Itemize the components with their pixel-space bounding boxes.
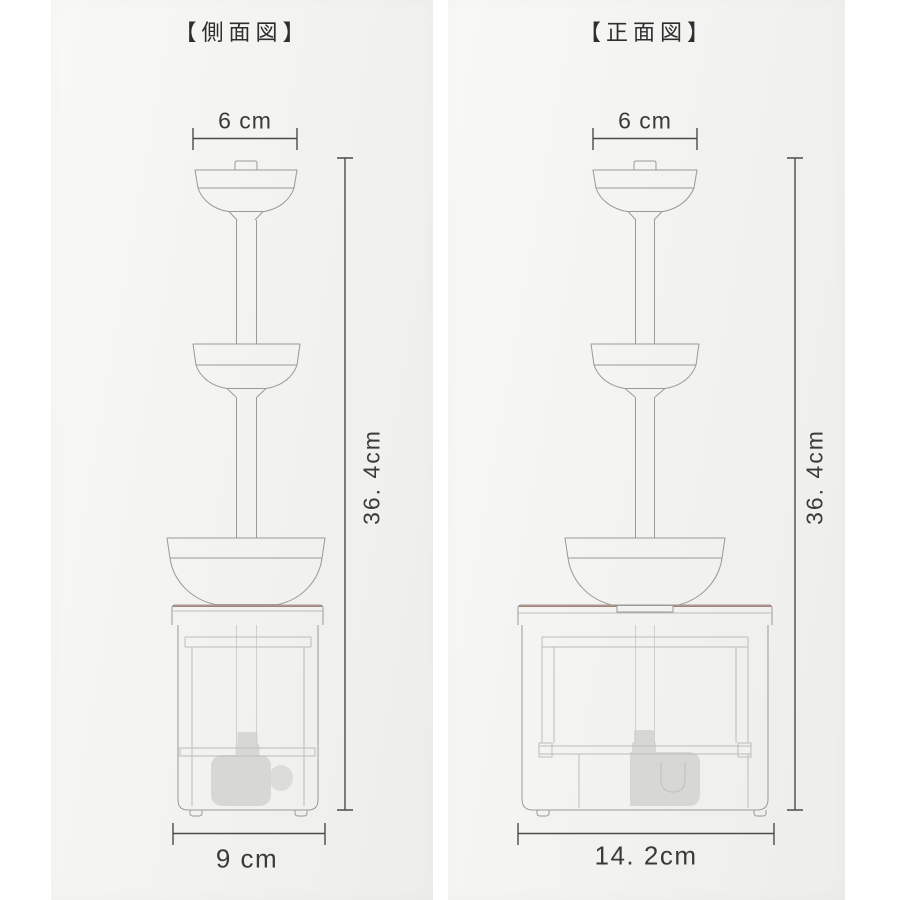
side-height-dimension-line — [337, 158, 353, 810]
dimension-diagram: 【側面図】 — [0, 0, 900, 900]
stem — [237, 220, 257, 538]
reservoir-lid — [518, 605, 772, 625]
stem-through-tank-lines — [237, 625, 257, 746]
side-view-panel: 【側面図】 — [51, 0, 433, 900]
reservoir-lid — [172, 605, 323, 625]
side-height-label: 36. 4cm — [359, 429, 386, 525]
main-bowl — [167, 538, 325, 605]
front-base-width-label: 14. 2cm — [595, 841, 698, 872]
side-top-width-label: 6 cm — [218, 108, 272, 135]
stem-through-tank-lines — [636, 625, 655, 744]
stem — [636, 220, 655, 538]
front-view-drawing — [448, 0, 845, 900]
pump — [630, 730, 700, 806]
top-bowl — [195, 161, 297, 220]
side-base-width-dimension-line — [173, 823, 325, 845]
main-bowl — [565, 538, 725, 606]
front-view-panel: 【正面図】 — [448, 0, 845, 900]
middle-bowl — [591, 344, 699, 397]
front-top-width-label: 6 cm — [618, 108, 672, 135]
pump — [211, 732, 293, 806]
middle-bowl — [193, 344, 300, 397]
top-bowl — [593, 161, 697, 220]
front-height-label: 36. 4cm — [802, 429, 829, 525]
side-base-width-label: 9 cm — [216, 844, 278, 875]
